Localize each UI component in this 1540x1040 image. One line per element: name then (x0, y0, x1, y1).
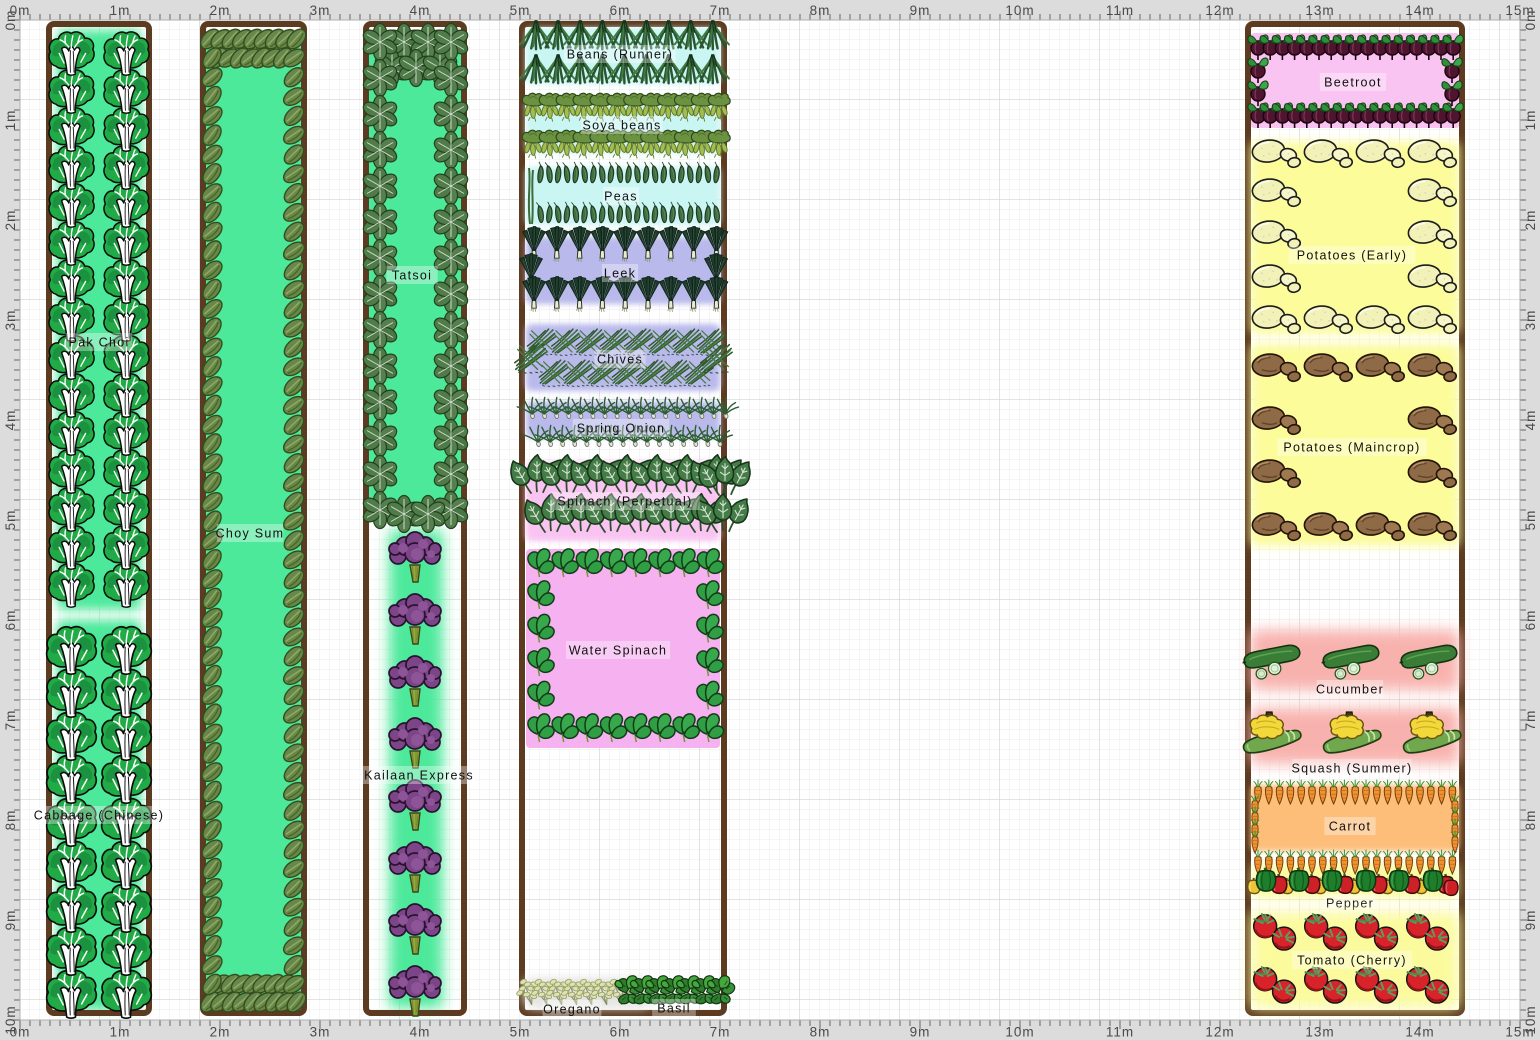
svg-text:10m: 10m (3, 1005, 18, 1034)
svg-text:9m: 9m (3, 910, 18, 931)
svg-text:13m: 13m (1305, 3, 1334, 18)
svg-text:6m: 6m (3, 610, 18, 631)
svg-text:Choy Sum: Choy Sum (216, 527, 285, 541)
svg-text:8m: 8m (810, 3, 831, 18)
svg-text:1m: 1m (110, 1025, 131, 1040)
svg-text:4m: 4m (1523, 410, 1538, 431)
svg-text:12m: 12m (1205, 1025, 1234, 1040)
svg-text:7m: 7m (710, 3, 731, 18)
svg-text:2m: 2m (1523, 210, 1538, 231)
svg-text:5m: 5m (1523, 510, 1538, 531)
svg-text:7m: 7m (1523, 710, 1538, 731)
svg-text:13m: 13m (1305, 1025, 1334, 1040)
svg-text:4m: 4m (410, 3, 431, 18)
svg-text:12m: 12m (1205, 3, 1234, 18)
svg-text:5m: 5m (3, 510, 18, 531)
svg-text:Soya beans: Soya beans (582, 119, 661, 133)
svg-text:Water Spinach: Water Spinach (569, 644, 667, 658)
svg-text:Carrot: Carrot (1329, 820, 1372, 834)
svg-text:3m: 3m (310, 1025, 331, 1040)
svg-text:9m: 9m (1523, 910, 1538, 931)
svg-text:6m: 6m (1523, 610, 1538, 631)
svg-text:6m: 6m (610, 1025, 631, 1040)
svg-text:1m: 1m (110, 3, 131, 18)
svg-text:Chives: Chives (597, 353, 643, 367)
svg-text:Potatoes (Maincrop): Potatoes (Maincrop) (1283, 441, 1420, 455)
svg-text:1m: 1m (1523, 110, 1538, 131)
svg-text:10m: 10m (1005, 3, 1034, 18)
svg-text:1m: 1m (3, 110, 18, 131)
svg-text:Leek: Leek (604, 267, 636, 281)
svg-text:4m: 4m (3, 410, 18, 431)
svg-text:Cabbage (Chinese): Cabbage (Chinese) (34, 809, 165, 823)
svg-text:2m: 2m (210, 3, 231, 18)
svg-text:Pepper: Pepper (1326, 897, 1374, 911)
svg-text:2m: 2m (210, 1025, 231, 1040)
svg-text:Spinach (Perpetual): Spinach (Perpetual) (557, 495, 692, 509)
svg-text:11m: 11m (1106, 3, 1134, 18)
svg-text:6m: 6m (610, 3, 631, 18)
svg-text:2m: 2m (3, 210, 18, 231)
svg-text:7m: 7m (3, 710, 18, 731)
svg-text:8m: 8m (1523, 810, 1538, 831)
svg-text:8m: 8m (3, 810, 18, 831)
svg-text:10m: 10m (1005, 1025, 1034, 1040)
svg-text:Beetroot: Beetroot (1324, 76, 1382, 90)
svg-text:Basil: Basil (657, 1002, 691, 1016)
svg-text:Oregano: Oregano (543, 1003, 601, 1017)
svg-text:Tomato (Cherry): Tomato (Cherry) (1297, 954, 1407, 968)
svg-text:Potatoes (Early): Potatoes (Early) (1297, 249, 1407, 263)
svg-text:3m: 3m (310, 3, 331, 18)
svg-text:Pak Choi: Pak Choi (68, 336, 129, 350)
svg-text:8m: 8m (810, 1025, 831, 1040)
svg-text:Beans (Runner): Beans (Runner) (567, 48, 673, 62)
svg-text:4m: 4m (410, 1025, 431, 1040)
svg-text:11m: 11m (1106, 1025, 1134, 1040)
svg-text:0m: 0m (3, 10, 18, 31)
svg-text:Cucumber: Cucumber (1316, 683, 1384, 697)
svg-text:Peas: Peas (604, 190, 638, 204)
svg-text:Kailaan Express: Kailaan Express (364, 769, 474, 783)
svg-text:7m: 7m (710, 1025, 731, 1040)
svg-text:Spring Onion: Spring Onion (577, 422, 666, 436)
svg-text:Squash (Summer): Squash (Summer) (1292, 762, 1413, 776)
svg-text:14m: 14m (1405, 3, 1434, 18)
svg-text:5m: 5m (510, 3, 531, 18)
svg-text:9m: 9m (910, 1025, 931, 1040)
svg-text:5m: 5m (510, 1025, 531, 1040)
svg-text:9m: 9m (910, 3, 931, 18)
svg-text:0m: 0m (1523, 10, 1538, 31)
svg-text:10m: 10m (1523, 1005, 1538, 1034)
svg-text:3m: 3m (3, 310, 18, 331)
svg-text:Tatsoi: Tatsoi (392, 269, 432, 283)
svg-text:14m: 14m (1405, 1025, 1434, 1040)
svg-text:3m: 3m (1523, 310, 1538, 331)
